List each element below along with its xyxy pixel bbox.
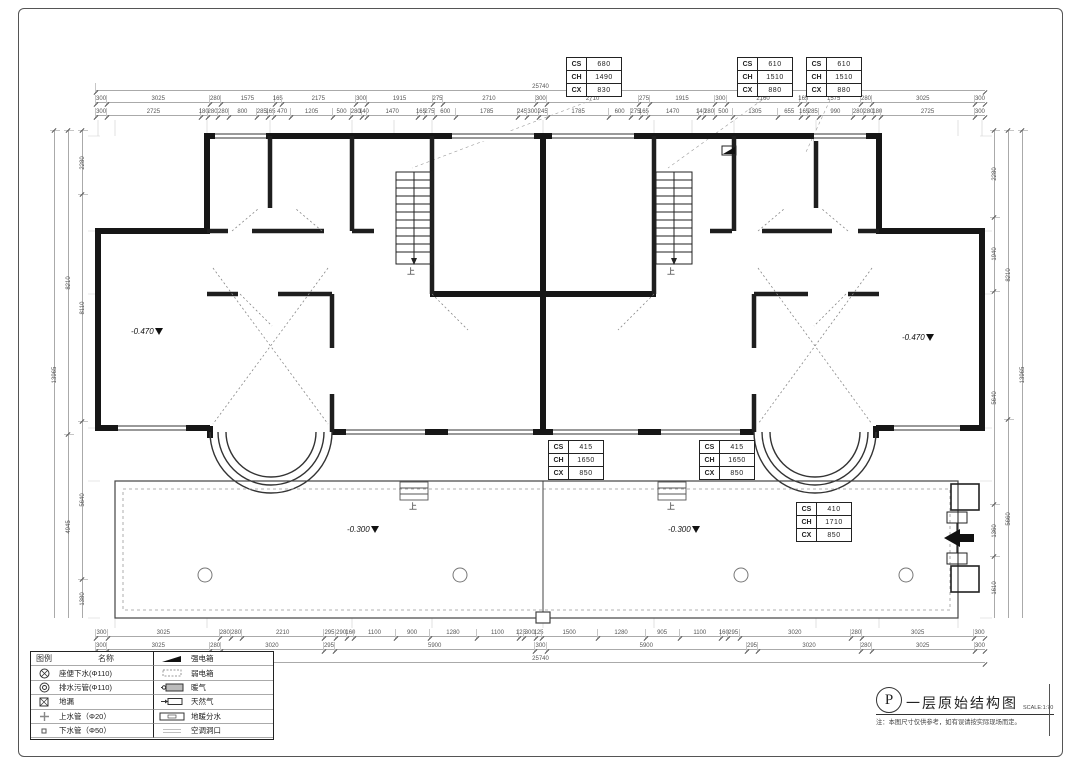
level-triangle-icon [926, 334, 934, 341]
level-triangle-icon [371, 526, 379, 533]
dim-top-row2: 3002725180280280800285165470120550028014… [95, 108, 985, 118]
level-marker: -0.300 [347, 525, 380, 534]
water-supply-icon [31, 710, 57, 724]
dim-right-inner: 22801940564013601610 [990, 130, 1000, 618]
sewage-pipe-icon [31, 681, 57, 695]
ceiling-table-2: CS610CH1510CX880 [737, 57, 793, 97]
floor-heating-icon [153, 710, 189, 724]
weak-power-box-icon [153, 666, 189, 680]
level-marker: -0.300 [668, 525, 701, 534]
stair-up-label: 上 [667, 266, 675, 277]
legend-item-label: 弱电箱 [189, 666, 273, 680]
legend-header-symbol: 图例 [31, 652, 57, 666]
legend-item-label: 排水污管(Φ110) [57, 681, 153, 695]
entrance-arrow-icon [944, 529, 974, 547]
stair-up-label: 上 [407, 266, 415, 277]
window-masks [118, 131, 960, 433]
sheet-symbol: P [876, 687, 902, 713]
ceiling-table-5: CS415CH1650CX850 [699, 440, 755, 480]
legend-item-label: 地漏 [57, 695, 153, 709]
drawing-sheet: 25740 3003025280157516521753001915275271… [0, 0, 1080, 764]
drawing-note: 注：本图尺寸仅供参考，如有误请按实际现场而定。 [876, 717, 1054, 726]
title-block: P 一层原始结构图 SCALE:1:70 注：本图尺寸仅供参考，如有误请按实际现… [876, 687, 1054, 726]
legend-item-label: 地暖分水 [189, 710, 273, 724]
legend-item-label: 天然气 [189, 695, 273, 709]
legend-item-label: 上水管（Φ20） [57, 710, 153, 724]
stair-left [396, 172, 432, 265]
dim-right-mid: 82105660 [1004, 130, 1014, 618]
level-triangle-icon [155, 328, 163, 335]
dim-left-inner: 2280811056401380 [78, 130, 88, 618]
legend-item-label: 下水管（Φ50） [57, 724, 153, 738]
level-triangle-icon [692, 526, 700, 533]
dim-bottom-row1: 3003025280280221029529016011009001280110… [95, 629, 985, 639]
strong-power-box-icon [153, 652, 189, 666]
windows [118, 134, 960, 434]
radiator-icon [153, 681, 189, 695]
drawing-title: 一层原始结构图 [906, 693, 1018, 713]
gas-icon [153, 695, 189, 709]
ceiling-table-6: CS410CH1710CX850 [796, 502, 852, 542]
stair-up-label: 上 [409, 501, 417, 512]
dim-right-outer: 13965 [1018, 130, 1028, 618]
ceiling-table-4: CS415CH1650CX850 [548, 440, 604, 480]
level-marker: -0.470 [131, 327, 164, 336]
legend-item-label: 强电箱 [189, 652, 273, 666]
legend-header-name: 名称 [57, 652, 153, 666]
legend-item-label: 空调洞口 [189, 724, 273, 738]
ac-hole-icon [153, 724, 189, 738]
stair-right [656, 172, 692, 265]
entry-marker [944, 484, 979, 592]
legend-item-label: 暖气 [189, 681, 273, 695]
toilet-drain-icon [31, 666, 57, 680]
dim-left-mid: 82104945 [64, 130, 74, 618]
title-block-divider [1049, 684, 1050, 736]
ceiling-table-1: CS680CH1490CX830 [566, 57, 622, 97]
legend-item-label: 座便下水(Φ110) [57, 666, 153, 680]
floor-drain-icon [31, 695, 57, 709]
stair-up-label: 上 [667, 501, 675, 512]
level-marker: -0.470 [902, 333, 935, 342]
water-drain-icon [31, 724, 57, 738]
dim-left-outer: 13965 [50, 130, 60, 618]
ceiling-table-3: CS610CH1510CX880 [806, 57, 862, 97]
legend-table: 图例 名称 强电箱 座便下水(Φ110) 弱电箱 排水污管(Φ110) 暖气 地… [30, 651, 274, 740]
